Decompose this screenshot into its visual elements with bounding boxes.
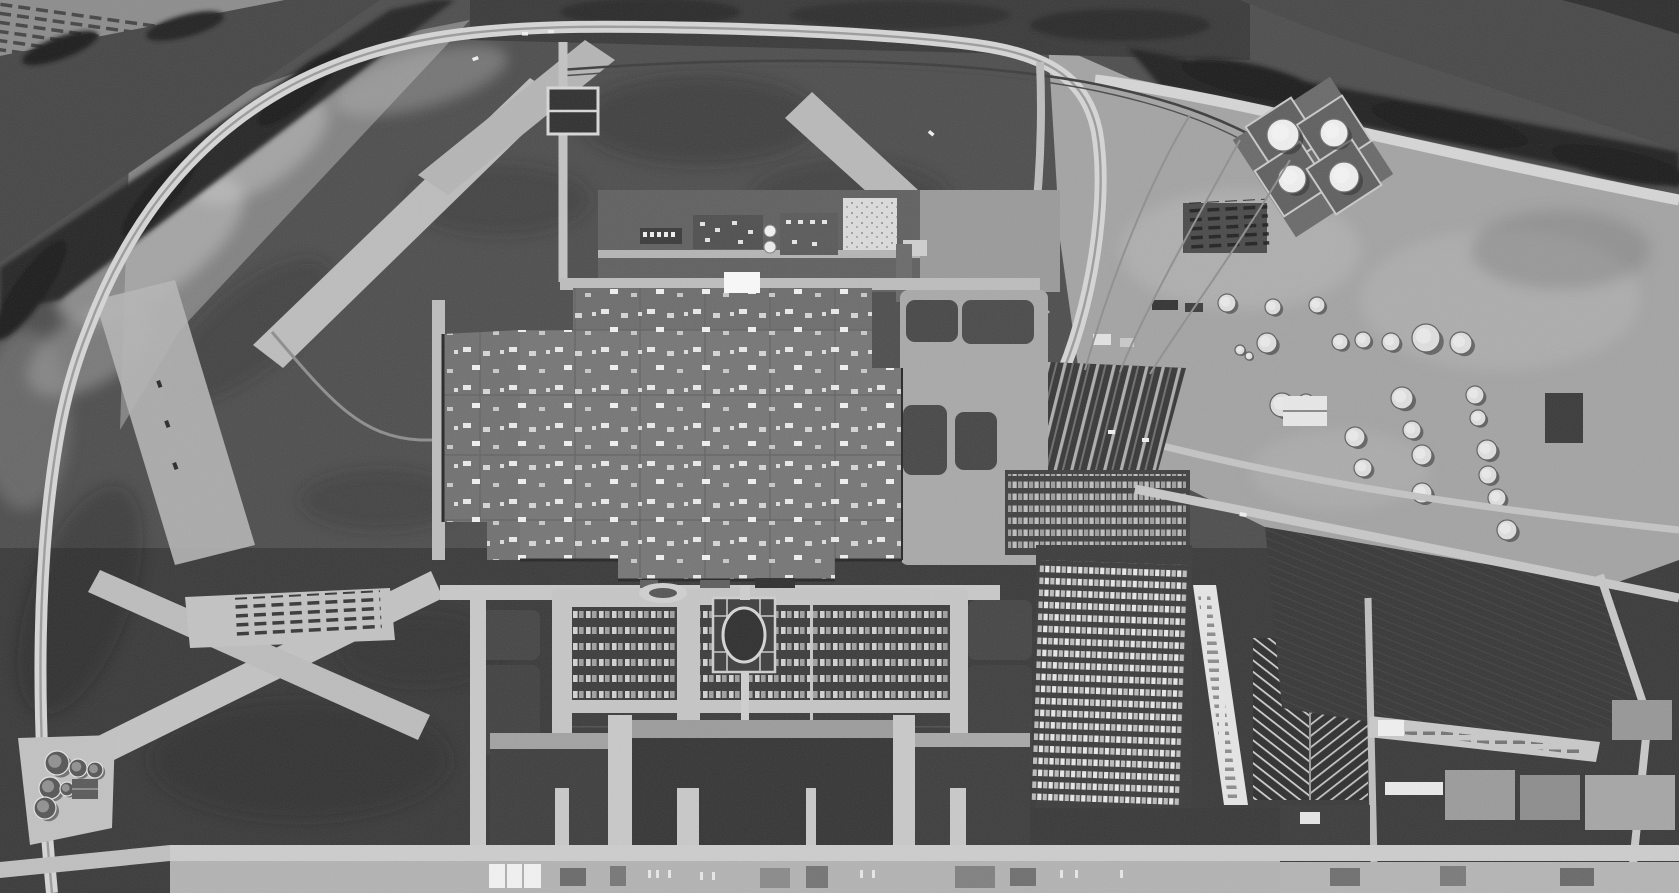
aerial-photo-stage (0, 0, 1679, 893)
aerial-photograph (0, 0, 1679, 893)
film-grain-overlay (0, 0, 1679, 893)
